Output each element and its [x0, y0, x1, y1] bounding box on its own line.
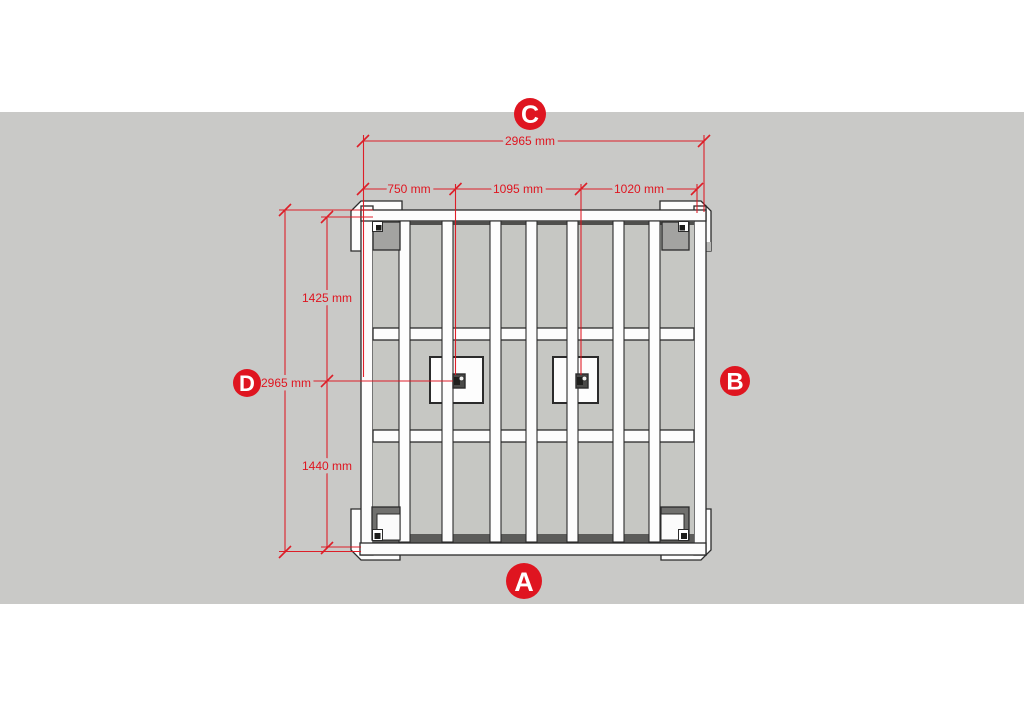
right-rail: [694, 206, 706, 555]
rafter-slat: [526, 221, 537, 542]
post-pin: [376, 225, 382, 231]
label-letter-b: B: [726, 369, 743, 396]
label-badge-right: B: [720, 366, 750, 396]
dim-text-segment-1425: 1425 mm: [302, 291, 352, 305]
post-pin: [375, 533, 381, 539]
label-letter-d: D: [239, 371, 255, 396]
post-pin: [680, 225, 686, 231]
corner-post-top-right: [662, 222, 689, 251]
center-fitting-right: [576, 374, 588, 388]
fitting-bolt: [582, 376, 587, 381]
dim-text-segment-1095: 1095 mm: [493, 182, 543, 196]
rafter-slat: [490, 221, 501, 542]
post-pin: [681, 533, 687, 539]
corner-post-top-left: [373, 222, 401, 251]
dim-text-overall-width: 2965 mm: [505, 134, 555, 148]
label-badge-left: D: [233, 369, 261, 397]
rafter-slat: [613, 221, 624, 542]
dim-text-overall-height: 2965 mm: [261, 376, 311, 390]
fitting-bolt: [459, 376, 464, 381]
rafter-slat: [649, 221, 660, 542]
corner-post-bottom-left: [372, 507, 400, 541]
technical-drawing: 2965 mm 750 mm 1095 mm 1020 mm 2965 mm 1…: [0, 0, 1024, 718]
top-rail: [361, 210, 706, 221]
dim-text-segment-1440: 1440 mm: [302, 459, 352, 473]
dim-text-segment-1020: 1020 mm: [614, 182, 664, 196]
label-badge-top: C: [514, 98, 546, 130]
label-letter-a: A: [514, 567, 534, 597]
corner-post-bottom-right: [661, 507, 689, 541]
dim-text-segment-750: 750 mm: [387, 182, 430, 196]
label-letter-c: C: [521, 101, 539, 129]
label-badge-bottom: A: [506, 563, 542, 599]
center-fitting-left: [453, 374, 465, 388]
bottom-rail: [360, 543, 706, 555]
drawing-page: 2965 mm 750 mm 1095 mm 1020 mm 2965 mm 1…: [0, 0, 1024, 718]
